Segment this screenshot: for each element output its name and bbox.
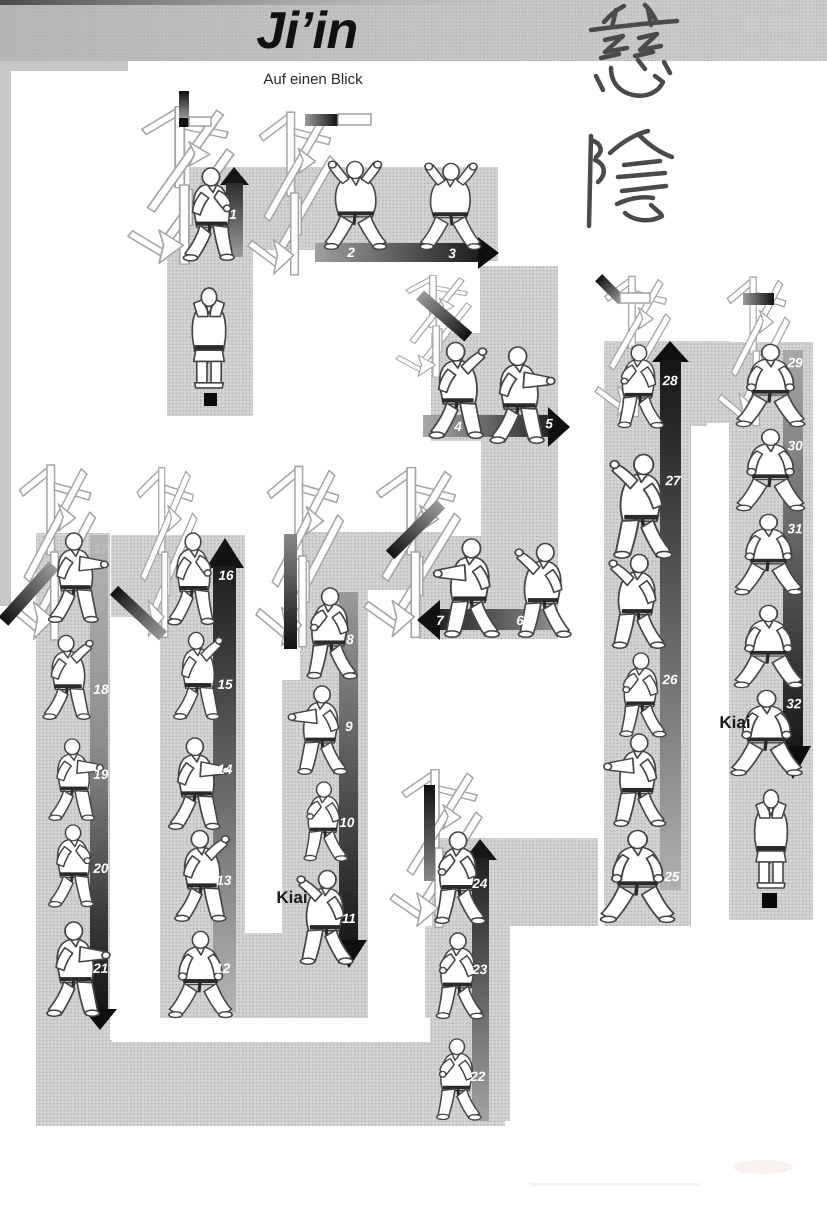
svg-text:Ji’in: Ji’in	[256, 2, 358, 60]
svg-text:10: 10	[339, 815, 355, 830]
svg-text:14: 14	[217, 762, 233, 777]
svg-text:9: 9	[345, 719, 353, 734]
svg-text:29: 29	[787, 355, 804, 370]
svg-text:Kiai: Kiai	[276, 888, 307, 907]
svg-text:8: 8	[346, 632, 354, 647]
svg-text:31: 31	[788, 521, 803, 536]
svg-text:17: 17	[94, 541, 111, 556]
svg-text:2: 2	[346, 245, 355, 260]
svg-text:Auf einen Blick: Auf einen Blick	[263, 71, 363, 88]
svg-text:21: 21	[92, 961, 108, 976]
svg-text:24: 24	[471, 876, 488, 891]
svg-text:26: 26	[661, 672, 678, 687]
svg-text:20: 20	[92, 861, 109, 876]
svg-text:27: 27	[665, 473, 683, 488]
svg-text:30: 30	[788, 438, 804, 453]
svg-text:32: 32	[786, 696, 802, 711]
svg-text:11: 11	[342, 911, 356, 926]
svg-text:25: 25	[663, 869, 680, 884]
svg-text:13: 13	[216, 873, 232, 888]
svg-text:19: 19	[93, 767, 109, 782]
svg-text:12: 12	[215, 961, 231, 976]
svg-text:1: 1	[229, 207, 237, 222]
svg-text:4: 4	[453, 419, 462, 434]
svg-text:Kiai: Kiai	[719, 713, 750, 732]
svg-text:22: 22	[469, 1069, 486, 1084]
svg-text:16: 16	[218, 568, 234, 583]
svg-text:18: 18	[93, 682, 109, 697]
svg-text:23: 23	[471, 962, 488, 977]
svg-text:28: 28	[662, 373, 679, 388]
svg-text:6: 6	[516, 613, 524, 628]
svg-text:3: 3	[448, 246, 456, 261]
svg-text:5: 5	[545, 416, 553, 431]
svg-text:15: 15	[217, 677, 233, 692]
